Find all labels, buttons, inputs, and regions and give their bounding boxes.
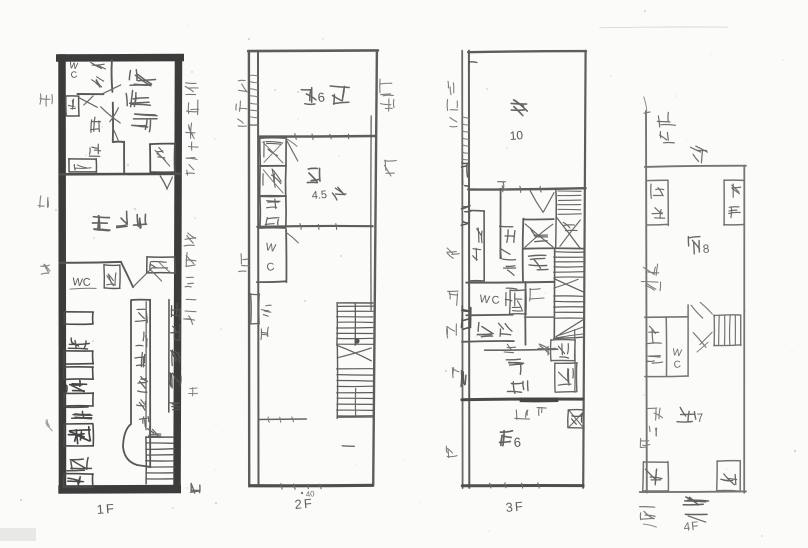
svg-text:C: C [491, 294, 500, 307]
svg-text:1F: 1F [96, 501, 116, 517]
svg-text:C: C [673, 359, 681, 371]
svg-text:6: 6 [513, 435, 521, 450]
svg-text:8: 8 [702, 242, 710, 256]
svg-text:4F: 4F [683, 518, 700, 534]
svg-text:10: 10 [509, 128, 524, 143]
svg-text:6: 6 [317, 89, 326, 105]
svg-text:3F: 3F [505, 498, 525, 515]
svg-text:2F: 2F [294, 495, 314, 512]
svg-text:4.5: 4.5 [311, 189, 327, 202]
svg-text:7: 7 [696, 411, 704, 425]
svg-text:C: C [82, 276, 91, 289]
